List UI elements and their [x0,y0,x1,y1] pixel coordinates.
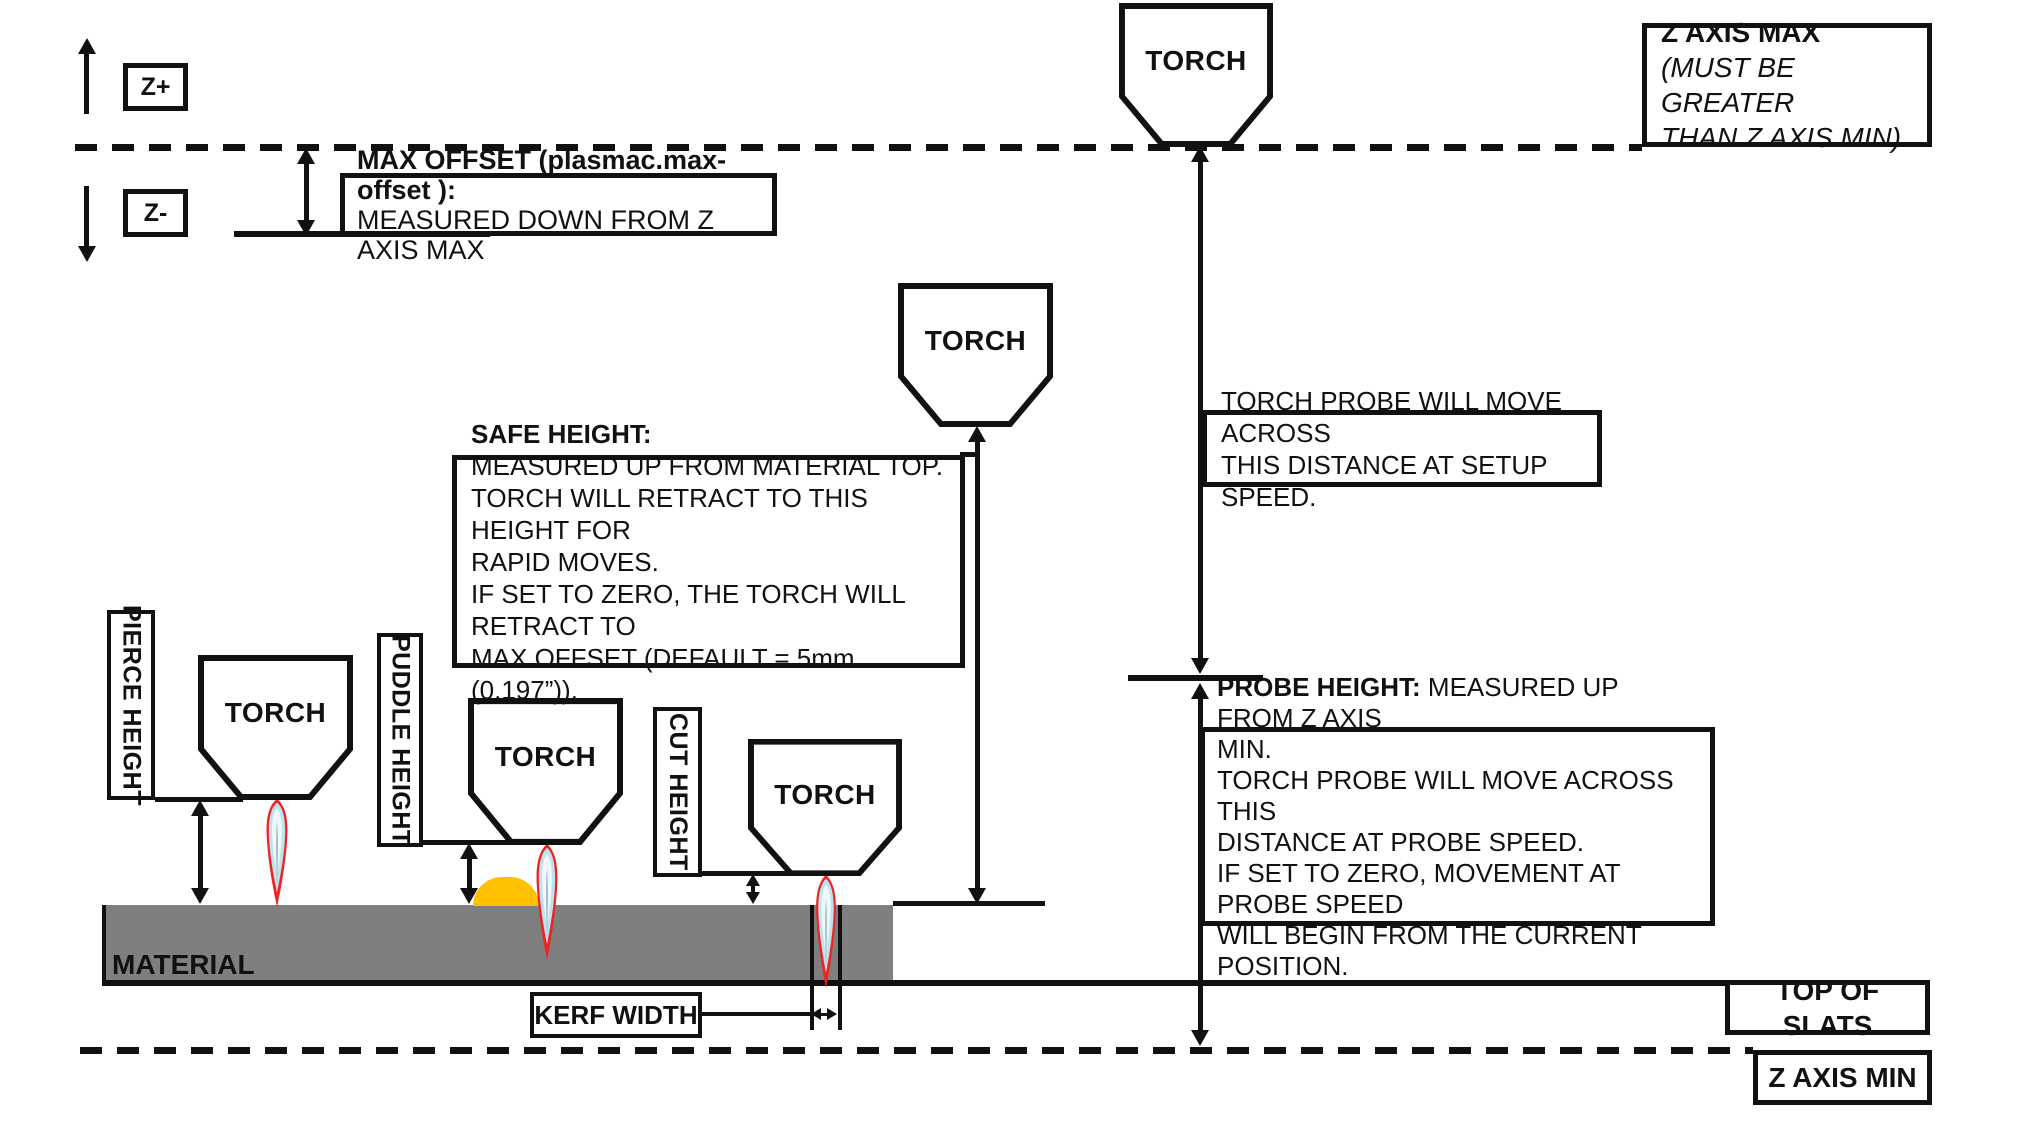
z-plus-label: Z+ [141,73,171,102]
safe-height-line-3: RAPID MOVES. [471,546,946,578]
z-axis-min-dashed-line [80,1047,1753,1054]
puddle-dim-line [467,855,472,890]
z-axis-min-label: Z AXIS MIN [1768,1060,1916,1095]
pierce-flame-icon [259,798,295,908]
torch-label: TORCH [1119,45,1273,77]
torch-label: TORCH [198,697,353,729]
torch-label: TORCH [748,779,902,811]
probe-height-line-5: WILL BEGIN FROM THE CURRENT POSITION. [1217,920,1698,982]
z-axis-max-note-1: (MUST BE GREATER [1661,50,1913,120]
torch-at-pierce-height: TORCH [198,655,353,800]
pierce-arrow-down-icon [191,888,209,904]
pierce-height-label-box: PIERCE HEIGHT [107,610,155,800]
plasmac-height-diagram: Z+ Z- MAX OFFSET (plasmac.max-offset ): … [0,0,2038,1145]
torch-label: TORCH [898,325,1053,357]
puddle-flame-icon [529,843,565,961]
safe-height-dim-line [975,440,980,890]
safe-height-line-4: IF SET TO ZERO, THE TORCH WILL RETRACT T… [471,578,946,642]
material-label: MATERIAL [112,949,255,981]
max-offset-box: MAX OFFSET (plasmac.max-offset ): MEASUR… [340,173,777,236]
cut-flame-icon [809,874,843,989]
kerf-width-box: KERF WIDTH [530,992,702,1038]
torch-at-puddle-height: TORCH [468,698,623,845]
probe-height-line-3: DISTANCE AT PROBE SPEED. [1217,827,1698,858]
probe-height-title-line: PROBE HEIGHT: MEASURED UP FROM Z AXIS [1217,672,1698,734]
kerf-width-label: KERF WIDTH [534,1000,697,1031]
torch-probe-line-2: THIS DISTANCE AT SETUP SPEED. [1221,449,1583,513]
cut-arrow-down-icon [746,892,760,904]
z-axis-max-box: Z AXIS MAX (MUST BE GREATER THAN Z AXIS … [1642,23,1932,147]
setup-speed-arrow-down-icon [1191,658,1209,674]
safe-height-line-1: MEASURED UP FROM MATERIAL TOP. [471,450,946,482]
safe-height-box: SAFE HEIGHT: MEASURED UP FROM MATERIAL T… [452,455,965,668]
z-minus-label-box: Z- [123,189,188,237]
safe-height-line-5: MAX OFFSET (DEFAULT = 5mm (0.197”)). [471,642,946,706]
probe-height-line-4: IF SET TO ZERO, MOVEMENT AT PROBE SPEED [1217,858,1698,920]
z-axis-max-note-2: THAN Z AXIS MIN) [1661,120,1913,155]
cut-height-label-box: CUT HEIGHT [653,707,702,877]
cut-height-label: CUT HEIGHT [663,713,692,871]
top-of-slats-box: TOP OF SLATS [1725,980,1930,1035]
z-minus-label: Z- [144,199,168,228]
probe-height-box: PROBE HEIGHT: MEASURED UP FROM Z AXIS MI… [1200,727,1715,926]
probe-height-title: PROBE HEIGHT: [1217,672,1421,702]
torch-probe-line-1: TORCH PROBE WILL MOVE ACROSS [1221,385,1583,449]
torch-probe-box: TORCH PROBE WILL MOVE ACROSS THIS DISTAN… [1202,410,1602,487]
max-offset-dim-line [304,160,309,224]
torch-at-cut-height: TORCH [748,739,902,876]
kerf-leader-line [702,1012,812,1016]
z-plus-arrow-shaft [84,52,89,114]
z-axis-max-title: Z AXIS MAX [1661,15,1913,50]
torch-at-z-max: TORCH [1119,3,1273,147]
safe-height-arrow-down-icon [968,888,986,904]
pierce-dim-line [198,812,203,890]
max-offset-text: MEASURED DOWN FROM Z AXIS MAX [357,205,760,265]
z-plus-label-box: Z+ [123,63,188,111]
torch-at-safe-height: TORCH [898,283,1053,427]
z-axis-min-box: Z AXIS MIN [1753,1050,1932,1105]
puddle-height-label-box: PUDDLE HEIGHT [377,633,423,847]
safe-height-title: SAFE HEIGHT: [471,418,946,450]
safe-height-line-2: TORCH WILL RETRACT TO THIS HEIGHT FOR [471,482,946,546]
puddle-height-label: PUDDLE HEIGHT [386,635,415,846]
z-minus-arrow-shaft [84,186,89,248]
torch-label: TORCH [468,741,623,773]
probe-speed-arrow-down-icon [1191,1030,1209,1046]
max-offset-title: MAX OFFSET (plasmac.max-offset ): [357,145,760,205]
puddle-arrow-down-icon [460,888,478,904]
pierce-height-label: PIERCE HEIGHT [117,605,146,806]
probe-height-line-2: TORCH PROBE WILL MOVE ACROSS THIS [1217,765,1698,827]
top-of-slats-label: TOP OF SLATS [1730,973,1925,1043]
z-minus-arrowhead-icon [78,246,96,262]
probe-height-line-1: MIN. [1217,734,1698,765]
kerf-arrow-right-icon [827,1008,837,1020]
